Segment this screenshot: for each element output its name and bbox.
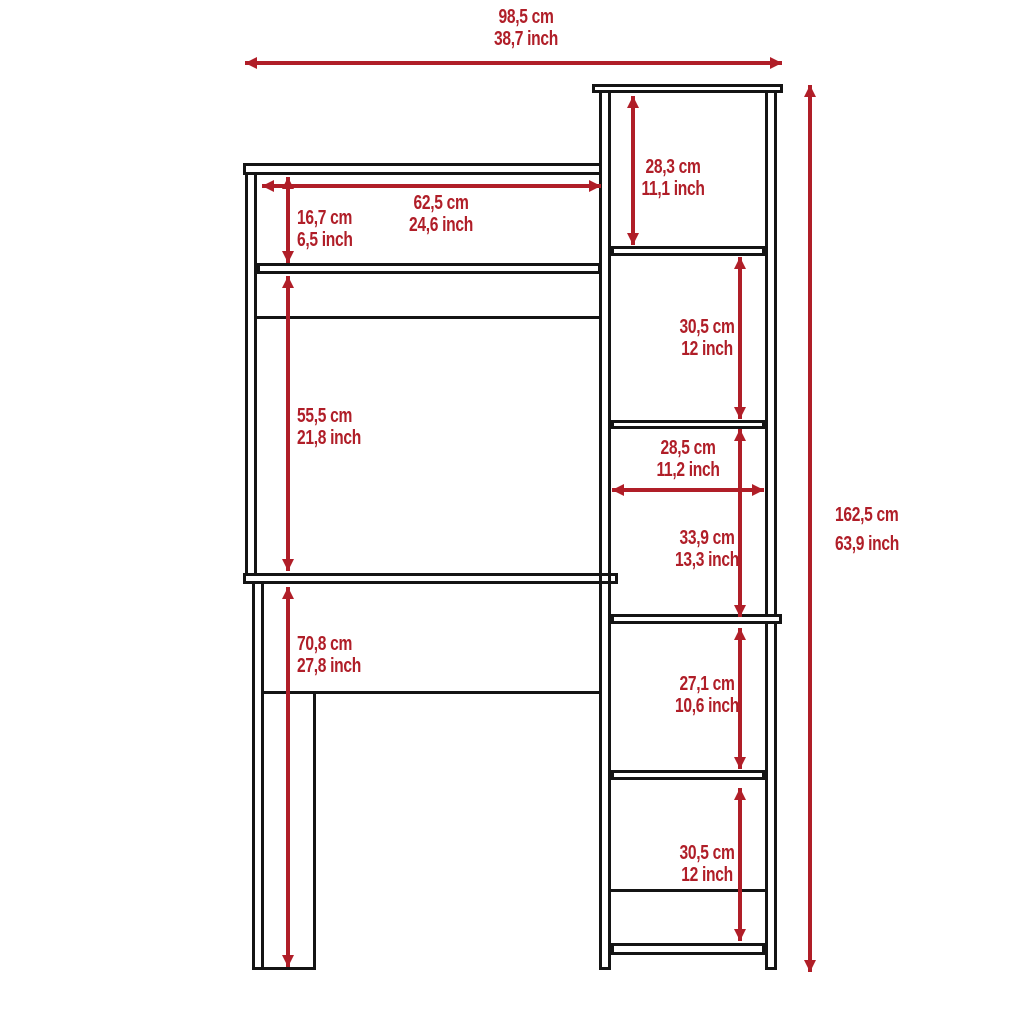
overall-width-inch: 38,7 inch — [464, 28, 589, 50]
bookcase-compartment-2-label: 30,5 cm 12 inch — [660, 316, 754, 360]
overall-width-label: 98,5 cm 38,7 inch — [464, 6, 589, 50]
bookcase-compartment-3-label: 33,9 cm 13,3 inch — [660, 527, 754, 571]
bookcase-compartment-1-label: 28,3 cm 11,1 inch — [626, 156, 720, 200]
bookcase-inner-width-label: 28,5 cm 11,2 inch — [641, 437, 735, 481]
desk-clearance-label: 70,8 cm 27,8 inch — [297, 633, 361, 677]
bookcase-left-panel-outer-edge — [599, 93, 602, 970]
bookcase-shelf-4 — [611, 770, 765, 780]
bookcase-compartment-4-inch: 10,6 inch — [660, 695, 754, 717]
hutch-divider-line — [257, 316, 601, 319]
hutch-opening-height-cm: 55,5 cm — [297, 405, 361, 427]
hutch-opening-height-label: 55,5 cm 21,8 inch — [297, 405, 361, 449]
hutch-opening-height-arrow — [286, 276, 290, 571]
bookcase-compartment-2-cm: 30,5 cm — [660, 316, 754, 338]
hutch-left-side-outer-edge — [245, 175, 248, 573]
hutch-shelf — [257, 263, 601, 274]
bookcase-shelf-3 — [611, 614, 782, 624]
hutch-left-side-inner-edge — [254, 175, 257, 573]
bookcase-compartment-1-cm: 28,3 cm — [626, 156, 720, 178]
furniture-dimension-diagram: 98,5 cm 38,7 inch 162,5 cm 63,9 inch 62,… — [0, 0, 1024, 1024]
bookcase-compartment-4-label: 27,1 cm 10,6 inch — [660, 673, 754, 717]
bookcase-compartment-3-arrow — [738, 429, 742, 617]
hutch-top-compartment-arrow — [286, 177, 290, 263]
bookcase-right-foot-cap — [765, 967, 777, 970]
desk-leg-inner-edge — [261, 584, 264, 970]
bookcase-compartment-4-cm: 27,1 cm — [660, 673, 754, 695]
bookcase-compartment-2-inch: 12 inch — [660, 338, 754, 360]
hutch-top-compartment-inch: 6,5 inch — [297, 229, 353, 251]
bookcase-right-panel-inner-edge — [765, 93, 768, 970]
bookcase-compartment-5-cm: 30,5 cm — [660, 842, 754, 864]
hutch-top-panel — [243, 163, 602, 175]
desk-leg-bottom-edge — [252, 967, 316, 970]
bookcase-compartment-5-label: 30,5 cm 12 inch — [660, 842, 754, 886]
bookcase-compartment-1-inch: 11,1 inch — [626, 178, 720, 200]
desk-clearance-inch: 27,8 inch — [297, 655, 361, 677]
bookcase-shelf-1 — [611, 246, 765, 256]
overall-height-inch: 63,9 inch — [835, 530, 899, 559]
bookcase-compartment-3-inch: 13,3 inch — [660, 549, 754, 571]
hutch-opening-width-cm: 62,5 cm — [379, 192, 504, 214]
bookcase-compartment-3-cm: 33,9 cm — [660, 527, 754, 549]
overall-height-arrow — [808, 85, 812, 972]
desk-clearance-cm: 70,8 cm — [297, 633, 361, 655]
bookcase-inner-width-cm: 28,5 cm — [641, 437, 735, 459]
bookcase-compartment-5-inch: 12 inch — [660, 864, 754, 886]
bookcase-top-panel — [592, 84, 783, 93]
hutch-opening-width-inch: 24,6 inch — [379, 214, 504, 236]
bookcase-right-panel-outer-edge — [774, 93, 777, 970]
desk-leg-right-edge — [313, 693, 316, 970]
overall-width-cm: 98,5 cm — [464, 6, 589, 28]
hutch-top-compartment-label: 16,7 cm 6,5 inch — [297, 207, 353, 251]
hutch-opening-width-label: 62,5 cm 24,6 inch — [379, 192, 504, 236]
bookcase-inner-width-inch: 11,2 inch — [641, 459, 735, 481]
bookcase-bottom-shelf — [611, 943, 765, 955]
overall-height-cm: 162,5 cm — [835, 501, 899, 530]
bookcase-left-foot-cap — [599, 967, 611, 970]
hutch-opening-height-inch: 21,8 inch — [297, 427, 361, 449]
hutch-opening-width-arrow — [262, 184, 601, 188]
overall-height-label: 162,5 cm 63,9 inch — [835, 501, 899, 559]
overall-width-arrow — [245, 61, 782, 65]
desk-surface — [243, 573, 618, 584]
desk-clearance-arrow — [286, 587, 290, 967]
bookcase-shelf-2 — [611, 420, 765, 429]
desk-leg-outer-edge — [252, 584, 255, 970]
bookcase-left-panel-inner-edge — [608, 93, 611, 970]
hutch-top-compartment-cm: 16,7 cm — [297, 207, 353, 229]
